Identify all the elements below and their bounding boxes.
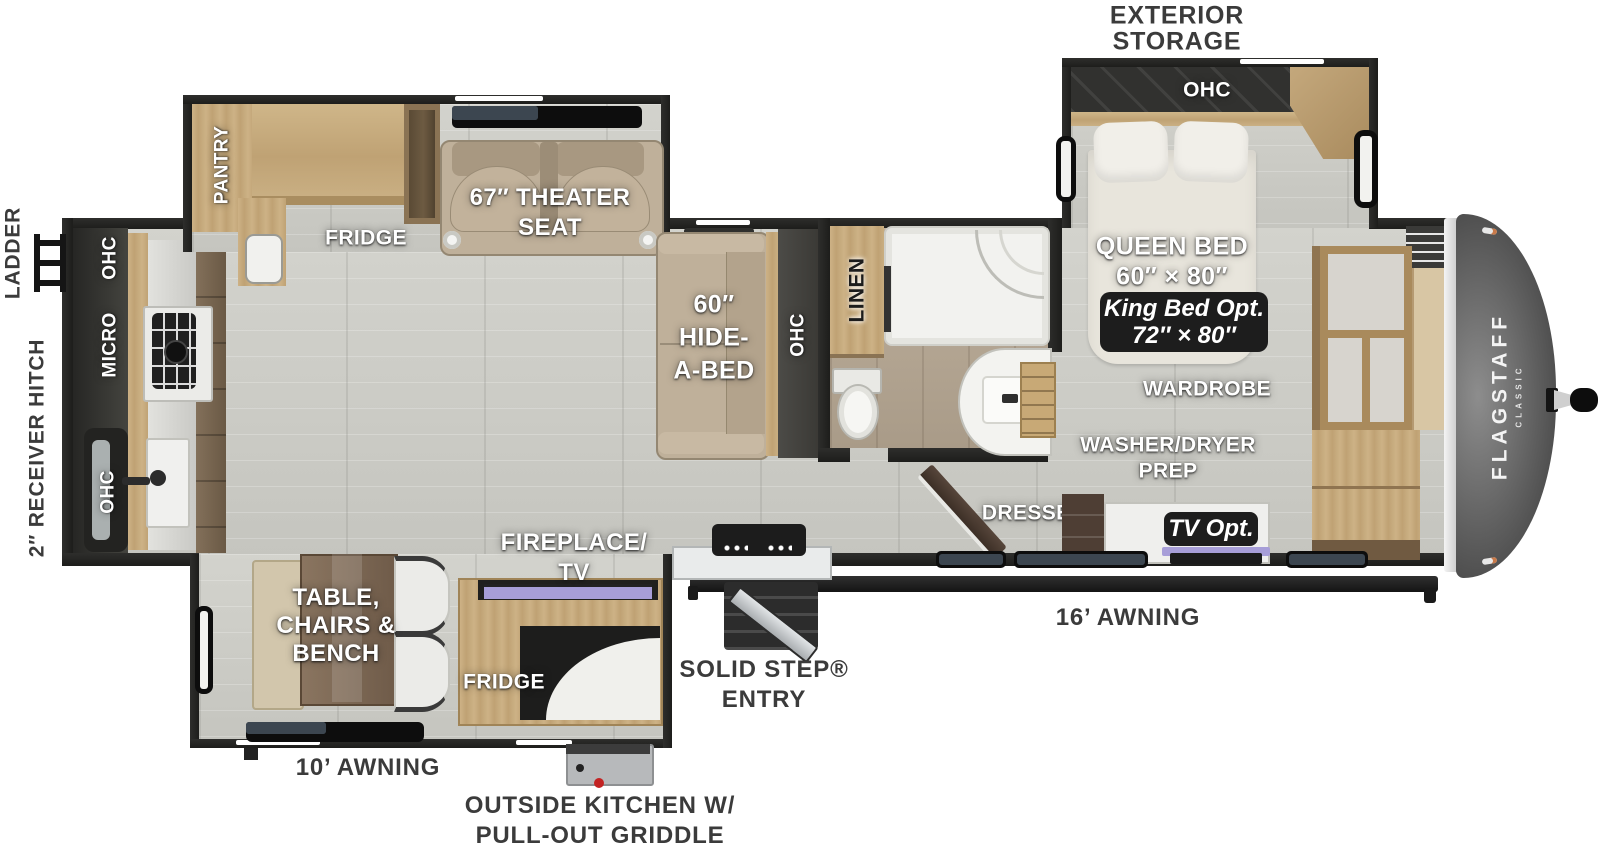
theater-seat-label-line2: SEAT — [518, 216, 582, 240]
linen-label: LINEN — [847, 258, 868, 323]
brand-name: FLAGSTAFF — [1489, 312, 1513, 480]
shower-valve — [884, 266, 891, 332]
fireplace-label-line1: FIREPLACE/ — [501, 531, 648, 555]
theater-slide-wall-tick — [455, 96, 543, 101]
ladder-icon — [34, 234, 66, 292]
theater-cupholder-left — [443, 231, 461, 249]
dinette-wall-tick-2 — [516, 740, 572, 745]
wardrobe-label: WARDROBE — [1143, 379, 1271, 400]
wire-shelves — [1406, 226, 1448, 268]
dinette-slide-right-wall — [663, 554, 672, 748]
washer-dryer-label-line1: WASHER/DRYER — [1080, 435, 1256, 456]
sofa-ohc-label: OHC — [789, 313, 808, 356]
fridge-door — [409, 110, 435, 218]
pantry-base-inset — [245, 234, 283, 284]
tv-option-badge: TV Opt. — [1164, 512, 1258, 546]
bedroom-window-left — [1056, 136, 1076, 202]
pullout-griddle-knob — [594, 778, 604, 788]
pullout-griddle-dot — [576, 764, 584, 772]
bathroom-bottom-wall-left — [818, 448, 850, 462]
theater-cupholder-right — [639, 231, 657, 249]
awning-16-bracket-left — [688, 586, 698, 600]
awning-10-label: 10’ AWNING — [296, 756, 440, 780]
theater-slide-top-wall — [183, 95, 670, 104]
bathroom-left-wall — [818, 218, 830, 462]
hide-a-bed-label-line3: A-BED — [673, 359, 754, 384]
bathroom-right-wall — [1048, 218, 1062, 352]
fireplace-label-line2: TV — [558, 561, 589, 585]
awning-16-bracket-right — [1424, 588, 1436, 603]
dinette-chair-top — [394, 556, 450, 636]
wardrobe-drawer-divider — [1312, 486, 1420, 489]
sofa-ohc-trim — [766, 232, 778, 456]
dinette-chair-bottom — [394, 632, 450, 712]
pantry-label: PANTRY — [213, 126, 232, 204]
top-wall-tick — [696, 220, 750, 225]
solid-step-label-line1: SOLID STEP® — [679, 658, 848, 682]
kitchen-faucet-handle — [122, 477, 150, 485]
theater-slide-left-wall — [183, 95, 192, 252]
sofa-arm-top — [658, 234, 764, 254]
awning-16-label: 16’ AWNING — [1056, 606, 1200, 630]
kitchen-micro-label: MICRO — [101, 312, 120, 377]
outside-kitchen-label-line2: PULL-OUT GRIDDLE — [476, 824, 725, 846]
hitch-ball-knob — [1570, 388, 1598, 412]
fridge-label: FRIDGE — [325, 228, 407, 249]
vanity-medicine-cabinet — [1020, 362, 1056, 438]
bedroom-slide-top-wall — [1062, 58, 1378, 67]
pantry-counter — [252, 104, 408, 200]
wardrobe-door-mullion-h — [1326, 330, 1406, 338]
outside-kitchen-label-line1: OUTSIDE KITCHEN W/ — [465, 794, 735, 818]
bottom-wall-tick-2 — [1312, 570, 1370, 575]
entry-griddle-knobs-right — [766, 545, 792, 551]
bottom-wall-tick-1 — [1038, 570, 1152, 575]
outside-fridge-label: FRIDGE — [463, 672, 545, 693]
hide-a-bed-label-line1: 60″ — [694, 293, 735, 318]
receiver-hitch-label: 2″ RECEIVER HITCH — [27, 339, 48, 558]
brand-series: CLASSIC — [1515, 312, 1524, 480]
exterior-storage-label-line1: EXTERIOR — [1110, 4, 1244, 29]
floorplan-canvas: OHC MICRO OHC LADDER 2″ RECEIVER HITCH P… — [0, 0, 1600, 846]
bed-pillow-left — [1093, 121, 1169, 184]
entry-griddle — [712, 524, 806, 556]
theater-seat-label-line1: 67″ THEATER — [470, 186, 631, 210]
solid-step-label-line2: ENTRY — [722, 688, 806, 712]
window-below-dresser — [936, 551, 1006, 568]
dinette-window-rear — [246, 722, 424, 742]
wardrobe-door-mullion-v — [1362, 338, 1370, 424]
dinette-label-line3: BENCH — [292, 642, 379, 666]
washer-dryer-label-line2: PREP — [1139, 461, 1198, 482]
ladder-label: LADDER — [3, 207, 24, 299]
dinette-window-side — [195, 606, 213, 694]
kitchen-ohc-upper-label: OHC — [101, 236, 120, 279]
fireplace-tv-strip — [484, 584, 652, 599]
king-bed-option-line2: 72″ × 80″ — [1132, 324, 1236, 348]
hide-a-bed-label-line2: HIDE- — [679, 326, 749, 351]
exterior-storage-label-line2: STORAGE — [1113, 30, 1242, 55]
wardrobe-drawers — [1312, 430, 1420, 548]
kitchen-faucet — [150, 470, 166, 486]
dinette-label-line2: CHAIRS & — [276, 614, 395, 638]
stove-burner — [164, 340, 188, 364]
tv-slab — [1170, 553, 1262, 564]
entry-griddle-knobs-left — [722, 545, 748, 551]
king-bed-option-badge: King Bed Opt. 72″ × 80″ — [1100, 292, 1268, 352]
theater-window — [452, 106, 642, 128]
dinette-label-line1: TABLE, — [292, 586, 379, 610]
bedroom-window-right — [1354, 130, 1378, 208]
pullout-griddle-top — [566, 744, 650, 754]
tv-option-label: TV Opt. — [1168, 517, 1253, 541]
bottom-wall-rear-segment — [62, 553, 199, 566]
vanity-faucet — [1002, 394, 1018, 403]
queen-bed-label-line2: 60″ × 80″ — [1116, 265, 1228, 290]
dinette-slide-foot-left — [244, 748, 258, 760]
bed-pillow-right — [1173, 121, 1249, 184]
king-bed-option-line1: King Bed Opt. — [1104, 297, 1264, 321]
window-below-washer — [1014, 551, 1148, 568]
bedroom-ohc-label: OHC — [1183, 80, 1231, 101]
bedroom-slide-wall-tick — [1240, 59, 1324, 64]
kitchen-ohc-lower-label: OHC — [99, 470, 118, 513]
toilet-bowl — [837, 384, 879, 440]
queen-bed-label-line1: QUEEN BED — [1096, 235, 1248, 260]
sofa-arm-bottom — [658, 432, 764, 454]
window-below-wardrobe — [1286, 551, 1368, 568]
